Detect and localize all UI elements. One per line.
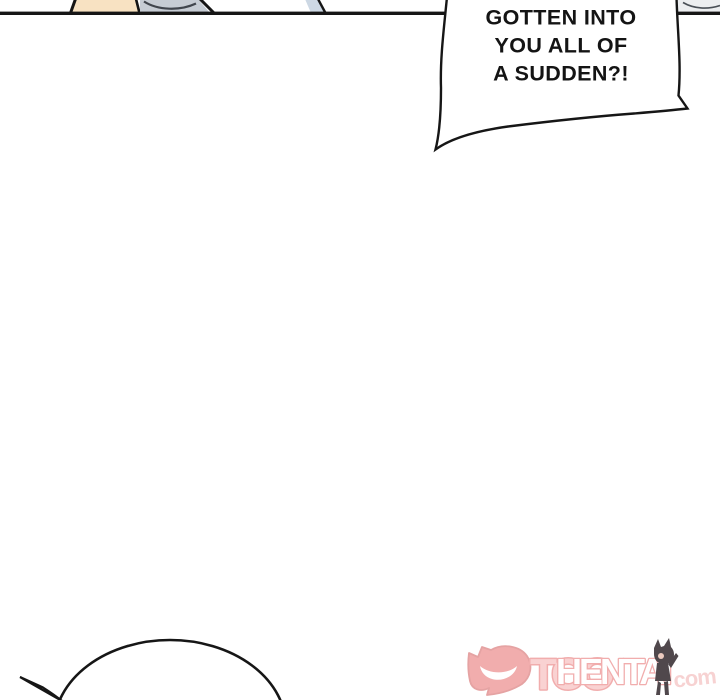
skin-fragment [71, 0, 140, 13]
jacket-fragment [140, 0, 210, 13]
ellipse-bubble [54, 640, 286, 700]
devil-face-icon [468, 646, 530, 695]
shout-bubble-line-3: A SUDDEN?! [493, 62, 629, 86]
watermark: TOO HENTAI com [468, 638, 717, 699]
shout-bubble-line-2: YOU ALL OF [495, 34, 628, 58]
shoulder-fragment [678, 0, 720, 12]
comic-page: GOTTEN INTO YOU ALL OF A SUDDEN?! TOO HE… [0, 0, 720, 700]
devil-face-body [468, 646, 530, 695]
watermark-text-word: HENTAI [556, 651, 670, 692]
shout-bubble-line-1: GOTTEN INTO [486, 6, 637, 30]
chibi-face [658, 653, 664, 659]
watermark-text-suffix: com [672, 663, 717, 692]
comic-art: GOTTEN INTO YOU ALL OF A SUDDEN?! TOO HE… [0, 0, 720, 700]
ellipse-bubble-tail [20, 677, 62, 700]
